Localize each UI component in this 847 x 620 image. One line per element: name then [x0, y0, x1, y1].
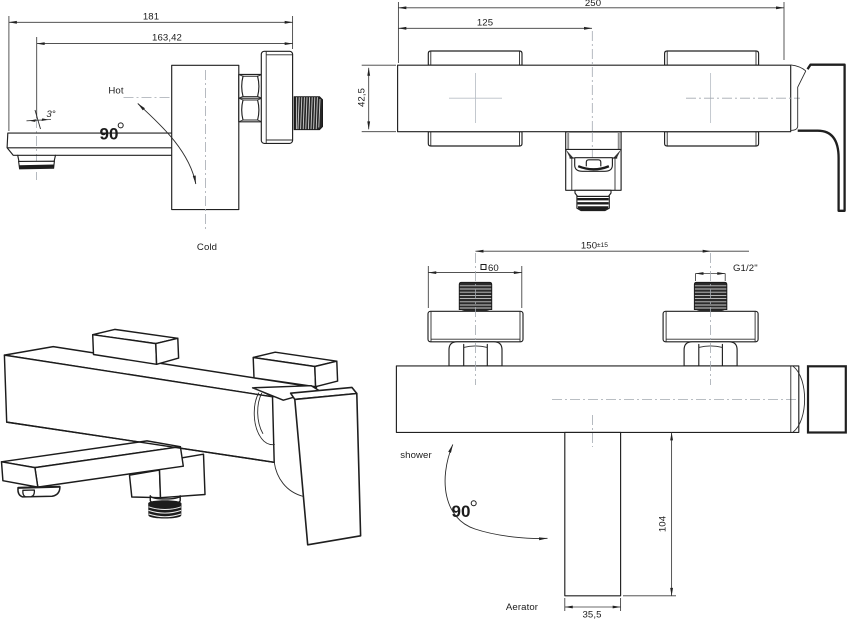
svg-text:125: 125 [477, 18, 493, 29]
svg-text:shower: shower [400, 450, 432, 461]
svg-text:G1/2": G1/2" [733, 263, 758, 274]
svg-text:3°: 3° [46, 109, 55, 120]
svg-text:90: 90 [100, 125, 119, 144]
svg-text:Hot: Hot [108, 86, 123, 97]
svg-text:104: 104 [658, 515, 669, 532]
svg-text:163,42: 163,42 [152, 33, 182, 44]
svg-text:150: 150 [581, 241, 597, 252]
svg-text:±15: ±15 [597, 242, 608, 249]
svg-text:Aerator: Aerator [506, 602, 539, 613]
svg-text:Cold: Cold [197, 242, 217, 253]
svg-text:90: 90 [452, 502, 471, 521]
svg-text:35,5: 35,5 [582, 610, 601, 620]
svg-text:181: 181 [143, 12, 159, 23]
svg-text:60: 60 [488, 263, 499, 274]
svg-text:250: 250 [585, 0, 601, 9]
svg-text:42,5: 42,5 [357, 88, 368, 107]
